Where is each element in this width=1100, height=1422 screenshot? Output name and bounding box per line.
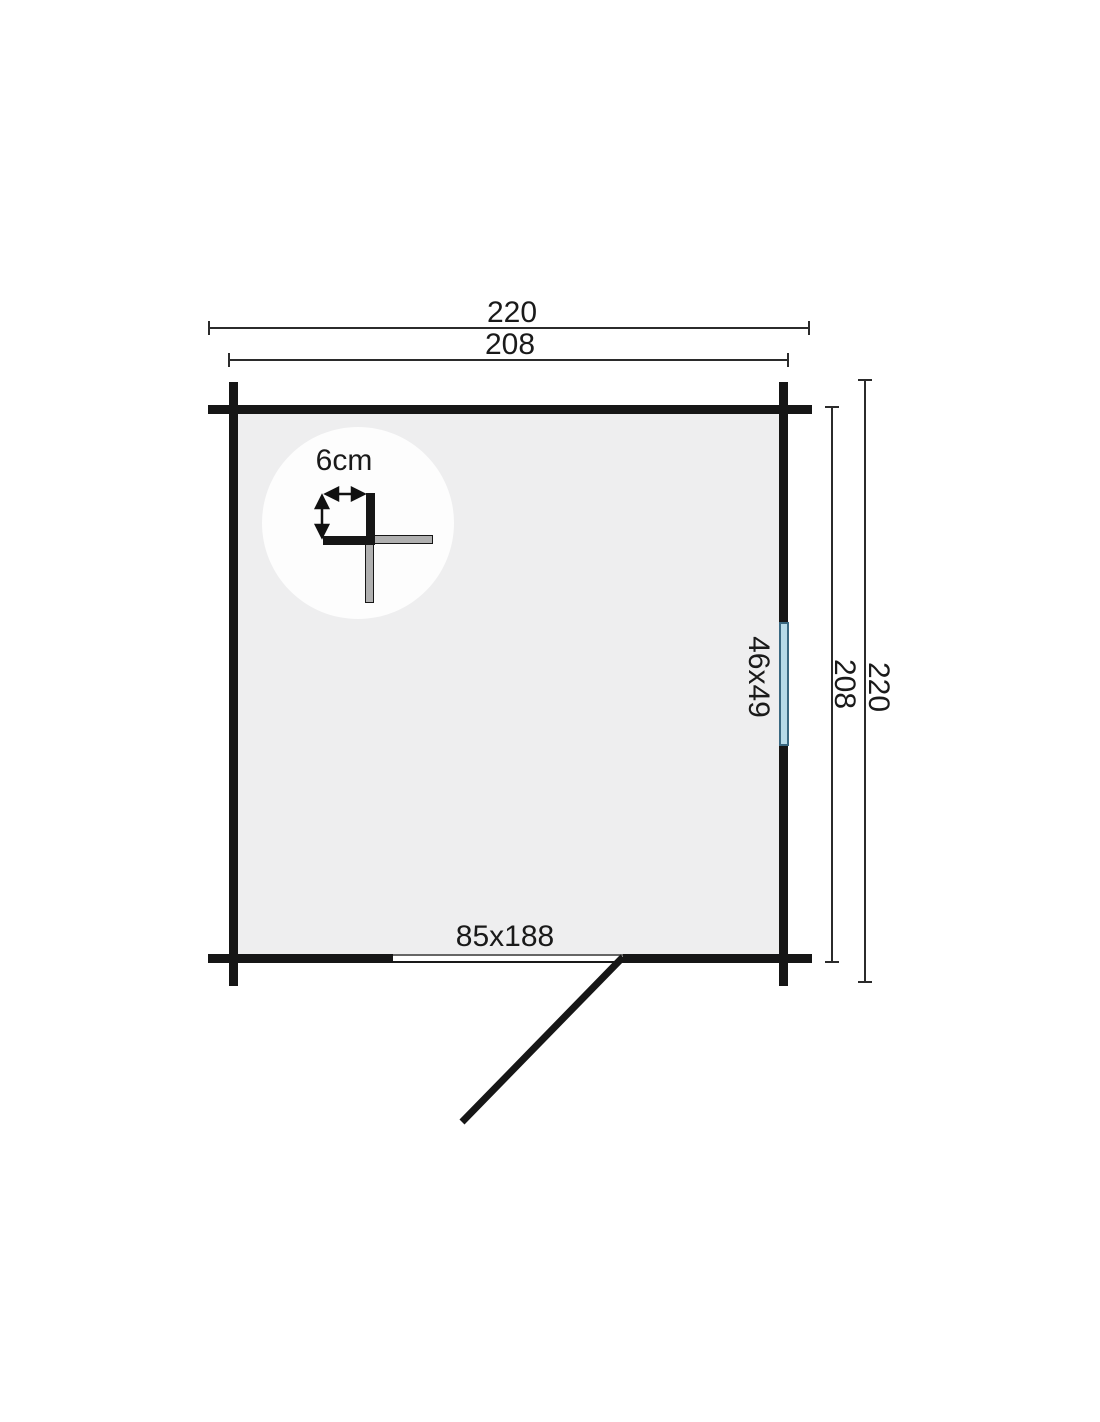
left-wall [229, 382, 238, 986]
door-size-label: 85x188 [456, 922, 554, 952]
door-opening-threshold [393, 954, 623, 963]
window-size-label: 46x49 [743, 636, 773, 718]
inner-width-label: 208 [485, 330, 535, 360]
floor-plan-page: { "plan": { "labels": { "outer_width": "… [0, 0, 1100, 1422]
outer-depth-label: 220 [863, 662, 893, 712]
outer-width-label: 220 [487, 298, 537, 328]
wall-thickness-label: 6cm [316, 446, 373, 476]
door-leaf-line [462, 957, 623, 1122]
top-wall [208, 405, 812, 414]
detail-log-vertical-gray [365, 544, 374, 603]
inner-depth-label: 208 [829, 659, 859, 709]
detail-log-horizontal-gray [374, 535, 433, 544]
window [779, 622, 789, 746]
bottom-wall-right-segment [623, 954, 812, 963]
bottom-wall-left-segment [208, 954, 393, 963]
